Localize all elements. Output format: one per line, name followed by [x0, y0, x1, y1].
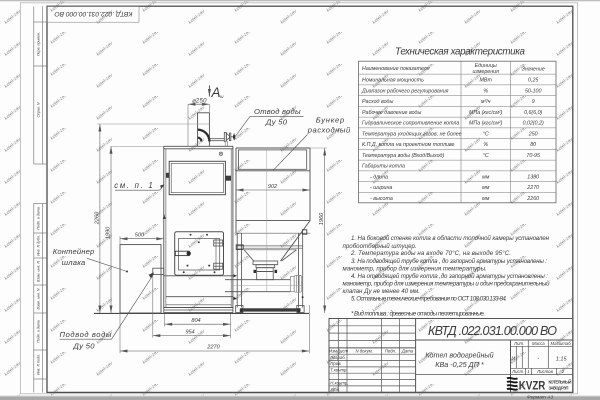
- svg-text:1. На боковой стенке котла в: 1. На боковой стенке котла в области топ…: [351, 235, 550, 242]
- svg-text:Лит.: Лит.: [513, 341, 524, 346]
- svg-text:шлака: шлака: [62, 258, 86, 267]
- svg-text:Подп. и дата: Подп. и дата: [37, 320, 41, 343]
- svg-text:Инв. N дубл.: Инв. N дубл.: [37, 235, 41, 256]
- svg-text:Подп.: Подп.: [385, 349, 396, 354]
- svg-text:4. На отводящей трубе котла ,: 4. На отводящей трубе котла ,до запорной…: [351, 273, 548, 280]
- svg-text:KVZR: KVZR: [519, 379, 546, 393]
- svg-text:Взам. инв. N: Взам. инв. N: [37, 261, 41, 282]
- svg-text:0,6(6,0): 0,6(6,0): [524, 110, 542, 116]
- svg-text:804: 804: [191, 318, 200, 324]
- svg-text:ЗАВОД РЭП: ЗАВОД РЭП: [549, 385, 569, 390]
- svg-text:954: 954: [185, 329, 194, 335]
- svg-text:Разраб.: Разраб.: [330, 355, 346, 360]
- svg-text:Расход воды: Расход воды: [362, 99, 393, 105]
- svg-text:клапан Ду не менее 40 мм.: клапан Ду не менее 40 мм.: [343, 288, 420, 295]
- svg-text:5. Остальные технические треб: 5. Остальные технические требования по О…: [351, 296, 507, 303]
- svg-text:Рабочее давление воды: Рабочее давление воды: [362, 110, 421, 116]
- svg-text:Подп. и дата: Подп. и дата: [37, 207, 41, 230]
- svg-text:1960: 1960: [319, 212, 325, 225]
- svg-text:Инв. N подл.: Инв. N подл.: [37, 354, 41, 375]
- svg-text:Бункер: Бункер: [316, 115, 345, 124]
- svg-text:%: %: [483, 88, 488, 94]
- svg-text:Справ. N: Справ. N: [37, 102, 41, 117]
- svg-text:250: 250: [528, 131, 538, 137]
- svg-text:80: 80: [530, 142, 536, 148]
- svg-text:50-100: 50-100: [525, 88, 542, 94]
- svg-text:Листов: Листов: [536, 369, 553, 374]
- svg-text:Габариты котла: Габариты котла: [362, 164, 405, 170]
- svg-text:Номинальная мощность: Номинальная мощность: [362, 78, 424, 84]
- svg-text:Перв. примен.: Перв. примен.: [37, 32, 41, 56]
- svg-text:Техническая характеристика: Техническая характеристика: [395, 47, 526, 58]
- svg-text:мм: мм: [482, 185, 490, 191]
- svg-text:°С: °С: [483, 131, 489, 137]
- svg-text:Н.контр.: Н.контр.: [330, 381, 348, 386]
- svg-text:КВа -0,25 ДП *: КВа -0,25 ДП *: [435, 360, 484, 369]
- svg-text:0,02(0,2): 0,02(0,2): [523, 121, 544, 127]
- svg-text:1:15: 1:15: [556, 356, 568, 362]
- svg-text:Подвод воды: Подвод воды: [60, 330, 112, 339]
- svg-text:- ширина: - ширина: [370, 185, 392, 191]
- svg-text:Отвод воды: Отвод воды: [254, 107, 301, 116]
- svg-text:2260: 2260: [526, 196, 539, 202]
- svg-text:измерения: измерения: [472, 69, 499, 75]
- svg-text:расходный: расходный: [307, 126, 351, 135]
- svg-text:мм: мм: [482, 196, 490, 202]
- svg-text:2260: 2260: [95, 211, 101, 225]
- svg-text:- длина: - длина: [370, 174, 388, 180]
- svg-text:ш: ш: [220, 94, 224, 99]
- svg-text:2270: 2270: [206, 345, 220, 351]
- svg-text:манометр, прибор для измерения: манометр, прибор для измерения температу…: [343, 265, 487, 272]
- svg-text:КВТД .022.031.00.000 ВО: КВТД .022.031.00.000 ВО: [428, 324, 557, 338]
- svg-text:Т.контр.: Т.контр.: [330, 368, 347, 373]
- svg-text:Ду 50: Ду 50: [73, 341, 96, 350]
- svg-text:1990: 1990: [106, 226, 112, 239]
- svg-text:Диапазон рабочего регулировани: Диапазон рабочего регулирования: [361, 88, 449, 94]
- svg-text:Температура воды (Вход/Выход): Температура воды (Вход/Выход): [362, 153, 444, 159]
- svg-text:1380: 1380: [527, 174, 539, 180]
- svg-text:Утв.: Утв.: [330, 387, 340, 392]
- svg-text:Лист: Лист: [336, 349, 348, 354]
- svg-text:902: 902: [268, 184, 278, 190]
- svg-text:Ду 50: Ду 50: [265, 117, 288, 126]
- svg-text:⌀250: ⌀250: [192, 98, 207, 104]
- svg-text:Взам. инв. N: Взам. инв. N: [37, 288, 41, 309]
- svg-text:-: -: [537, 355, 539, 361]
- svg-text:А: А: [211, 85, 221, 100]
- svg-text:N докум.: N докум.: [356, 349, 373, 354]
- svg-text:0,25: 0,25: [528, 78, 538, 84]
- svg-text:КВТД .022.031.00.000 ВО: КВТД .022.031.00.000 ВО: [54, 10, 133, 17]
- svg-text:И: И: [511, 356, 515, 362]
- svg-text:манометр, прибор для измерения: манометр, прибор для измерения температу…: [343, 280, 551, 287]
- svg-text:Наименование показателя: Наименование показателя: [362, 66, 430, 72]
- svg-text:МПа (кгс/см²): МПа (кгс/см²): [469, 110, 503, 116]
- svg-text:м³/ч: м³/ч: [481, 99, 491, 105]
- svg-text:Контейнер: Контейнер: [53, 247, 95, 256]
- svg-text:2. Температура воды на входе: 2. Температура воды на входе 70°С, на вы…: [350, 250, 511, 257]
- svg-text:°С: °С: [483, 153, 489, 159]
- svg-text:9: 9: [532, 99, 535, 105]
- svg-text:пробоотборный штуцер.: пробоотборный штуцер.: [343, 243, 417, 250]
- svg-text:Масса: Масса: [532, 341, 545, 346]
- svg-text:К.П.Д. котла на проектном топл: К.П.Д. котла на проектном топливе: [362, 142, 455, 148]
- svg-text:Гидравлическое сопротивление к: Гидравлическое сопротивление котла: [362, 121, 459, 127]
- svg-text:70-95: 70-95: [526, 153, 540, 159]
- svg-text:Температура уходящих газов, не: Температура уходящих газов, не более: [362, 131, 462, 137]
- svg-text:3. На подводящей трубе котла: 3. На подводящей трубе котла , до запорн…: [351, 258, 547, 265]
- svg-text:Пров.: Пров.: [330, 361, 341, 366]
- svg-text:Лист: Лист: [511, 369, 523, 374]
- svg-text:2270: 2270: [526, 185, 539, 191]
- svg-text:%: %: [483, 142, 488, 148]
- svg-text:мм: мм: [482, 174, 490, 180]
- svg-text:* Вид топлива : древесные от: * Вид топлива : древесные отходы пеллети…: [351, 310, 485, 317]
- svg-text:Котел водогрейный: Котел водогрейный: [425, 350, 493, 359]
- svg-text:Значение: Значение: [522, 66, 545, 72]
- svg-text:МПа (кгс/см²): МПа (кгс/см²): [469, 121, 503, 127]
- svg-text:Дата: Дата: [401, 349, 414, 354]
- svg-text:Масштаб: Масштаб: [551, 341, 572, 346]
- svg-text:- высота: - высота: [370, 196, 393, 202]
- svg-text:КОТЕЛЬНЫЙ: КОТЕЛЬНЫЙ: [549, 379, 572, 384]
- svg-text:МВт: МВт: [480, 78, 493, 84]
- svg-text:Формат А3: Формат А3: [527, 394, 554, 400]
- svg-text:500: 500: [135, 232, 145, 238]
